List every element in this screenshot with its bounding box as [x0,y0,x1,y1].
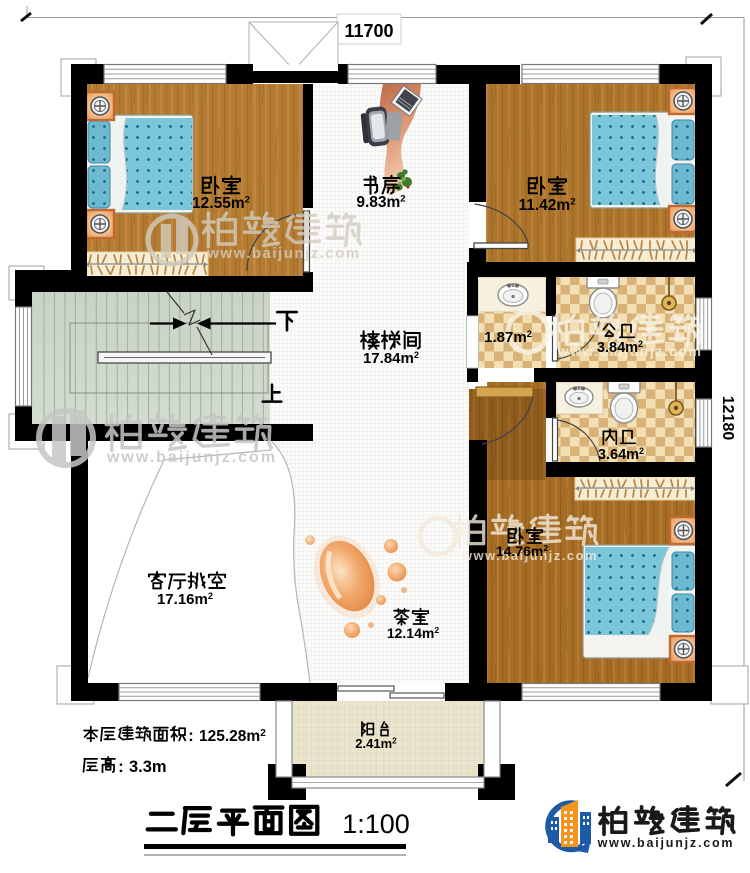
svg-text:12180: 12180 [719,396,736,441]
svg-text:125.28m2: 125.28m2 [199,728,266,745]
svg-text:2.41m2: 2.41m2 [355,736,397,751]
svg-text::: : [188,726,194,745]
svg-text:3.84m2: 3.84m2 [597,339,643,356]
svg-text:17.16m2: 17.16m2 [157,591,213,608]
svg-text::: : [118,757,124,776]
svg-text:1.87m2: 1.87m2 [484,329,532,346]
svg-text:14.76m2: 14.76m2 [496,543,548,559]
svg-text:www.baijunjz.com: www.baijunjz.com [206,245,360,262]
svg-text:9.83m2: 9.83m2 [356,194,405,211]
svg-text:www.baijunjz.com: www.baijunjz.com [597,836,735,850]
svg-text:www.baijunjz.com: www.baijunjz.com [106,449,277,466]
svg-text:1:100: 1:100 [342,809,410,839]
svg-text:11.42m2: 11.42m2 [518,197,575,214]
svg-text:11700: 11700 [344,21,393,41]
svg-text:12.14m2: 12.14m2 [387,625,439,641]
svg-text:3.64m2: 3.64m2 [598,446,644,463]
svg-text:3.3m: 3.3m [129,758,167,776]
svg-text:17.84m2: 17.84m2 [363,350,419,367]
svg-text:12.55m2: 12.55m2 [192,195,250,212]
